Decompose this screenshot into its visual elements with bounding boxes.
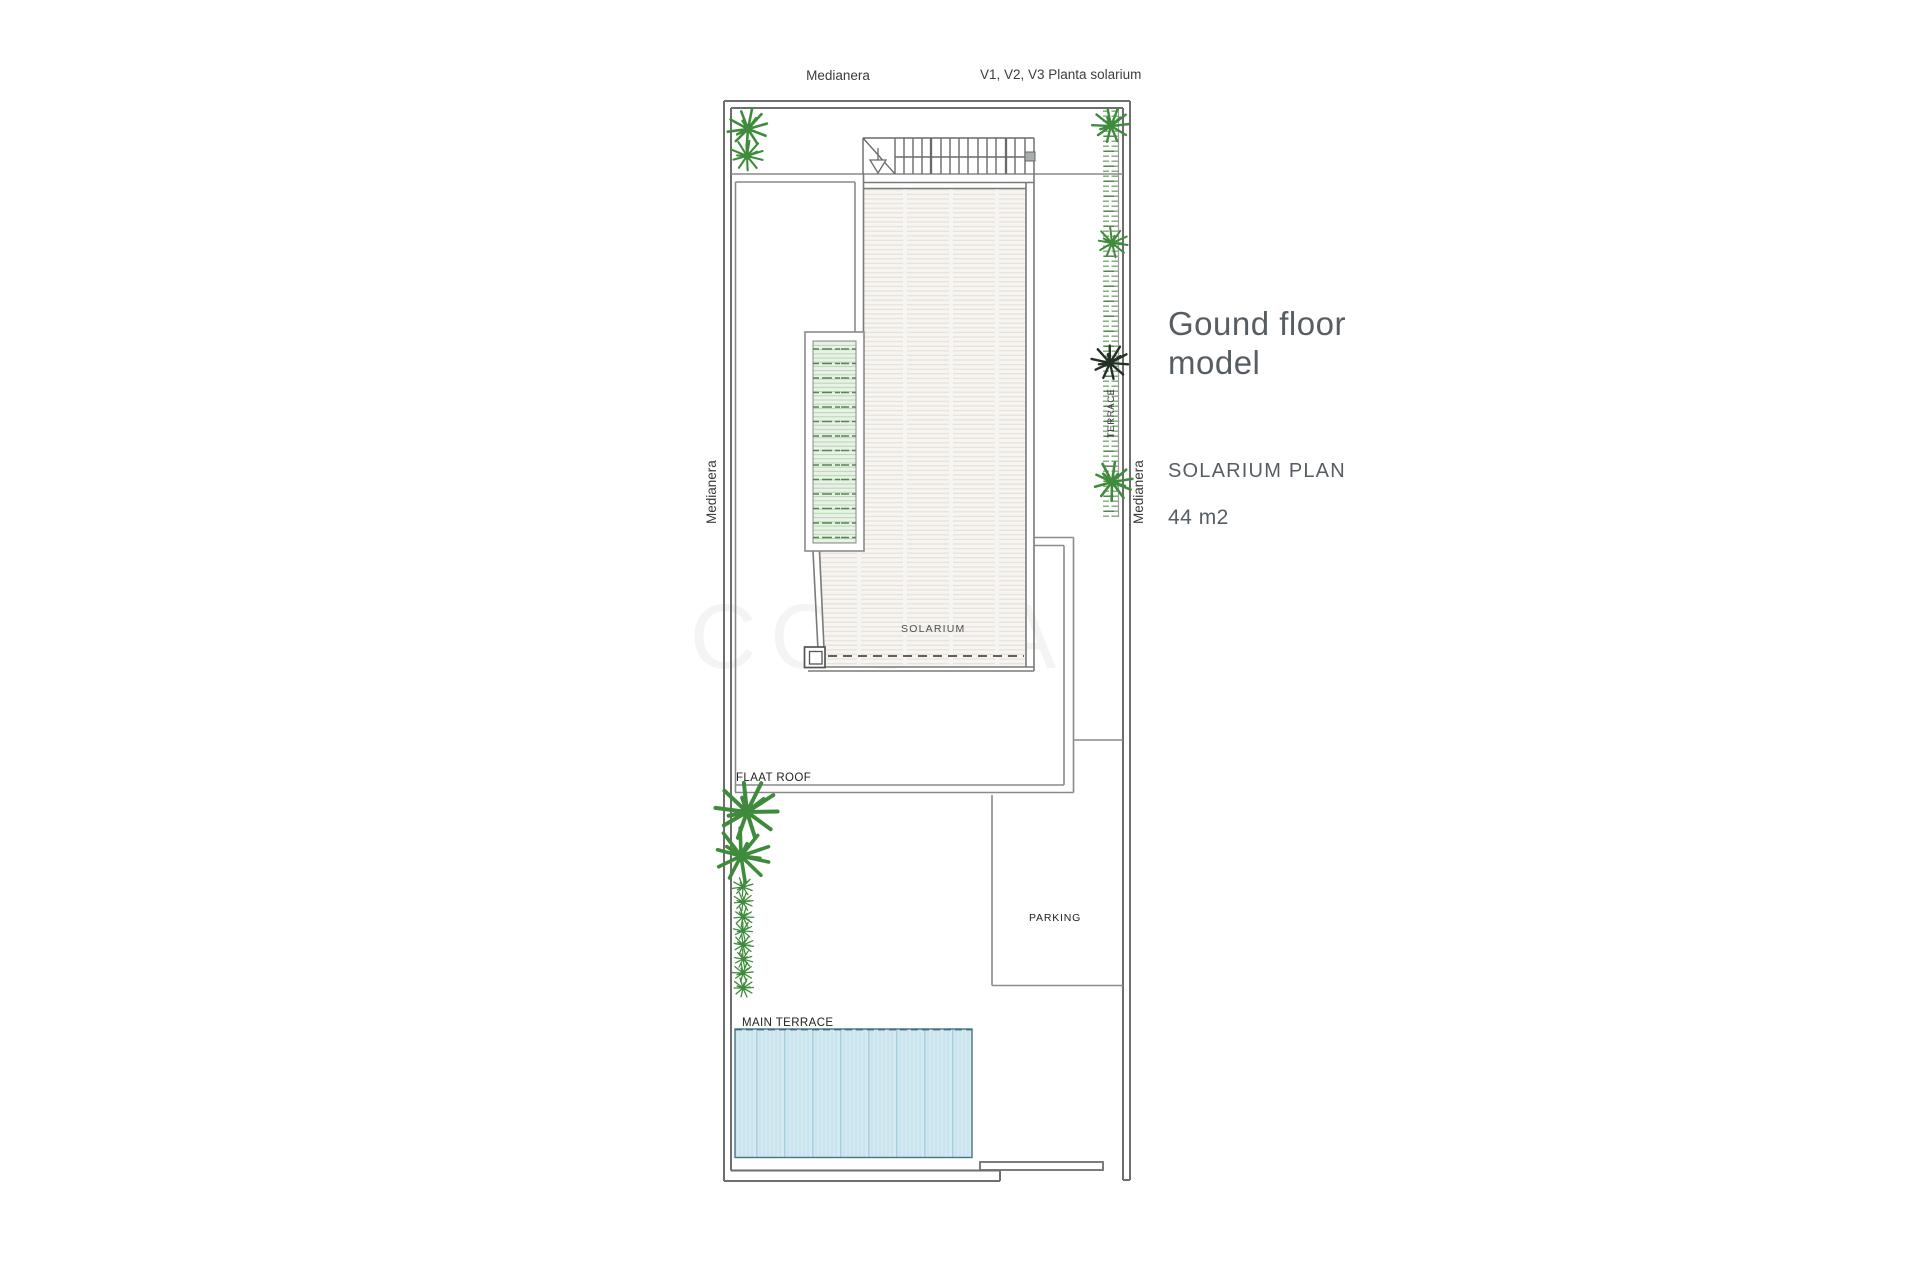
planter [805, 332, 864, 551]
pool [735, 1029, 972, 1158]
right-terrace-strip [1102, 108, 1119, 517]
page-title-line1: Gound floor [1168, 304, 1346, 343]
plant-icon [732, 905, 755, 928]
parking-area [992, 795, 1123, 986]
label-medianera-left: Medianera [704, 460, 719, 524]
area-label: 44 m2 [1168, 506, 1229, 530]
page-title: Gound floor model [1168, 304, 1346, 382]
gate-wall-segment [980, 1162, 1103, 1170]
plant-icon [733, 877, 753, 897]
corner-column [805, 647, 826, 668]
plan-name-label: SOLARIUM PLAN [1168, 460, 1346, 483]
label-medianera-top: Medianera [806, 68, 870, 83]
plant-icon [729, 973, 757, 1001]
label-version-note: V1, V2, V3 Planta solarium [980, 67, 1141, 82]
page: COSTA [0, 0, 1920, 1280]
label-medianera-right: Medianera [1131, 460, 1146, 524]
stair-wall-block [1025, 152, 1035, 161]
label-terrace-side: TERRACE [1106, 388, 1117, 438]
label-solarium: SOLARIUM [901, 623, 965, 635]
floor-plan-svg: COSTA [0, 0, 1920, 1280]
stairs [863, 138, 1034, 174]
plant-icon [731, 961, 754, 984]
label-flat-roof: FLAAT ROOF [736, 772, 811, 784]
label-parking: PARKING [1029, 912, 1081, 924]
plant-icon [728, 109, 767, 147]
page-title-line2: model [1168, 343, 1346, 382]
label-main-terrace: MAIN TERRACE [742, 1017, 834, 1029]
